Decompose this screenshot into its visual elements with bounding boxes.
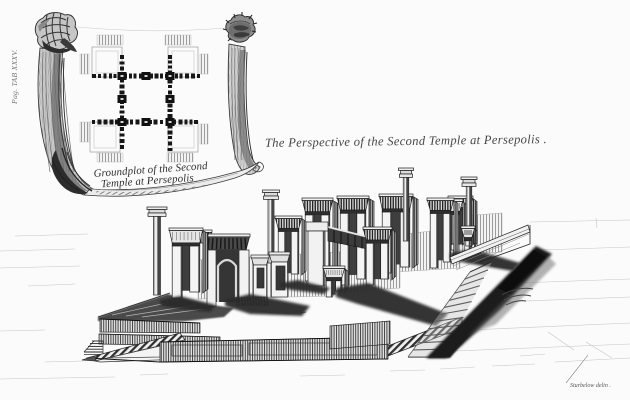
- svg-text:Pag. TAB XXXV.: Pag. TAB XXXV.: [10, 50, 19, 105]
- svg-text:Sturbelow delin .: Sturbelow delin .: [570, 383, 611, 389]
- svg-text:The Perspective of the Second: The Perspective of the Second Temple at …: [265, 132, 547, 150]
